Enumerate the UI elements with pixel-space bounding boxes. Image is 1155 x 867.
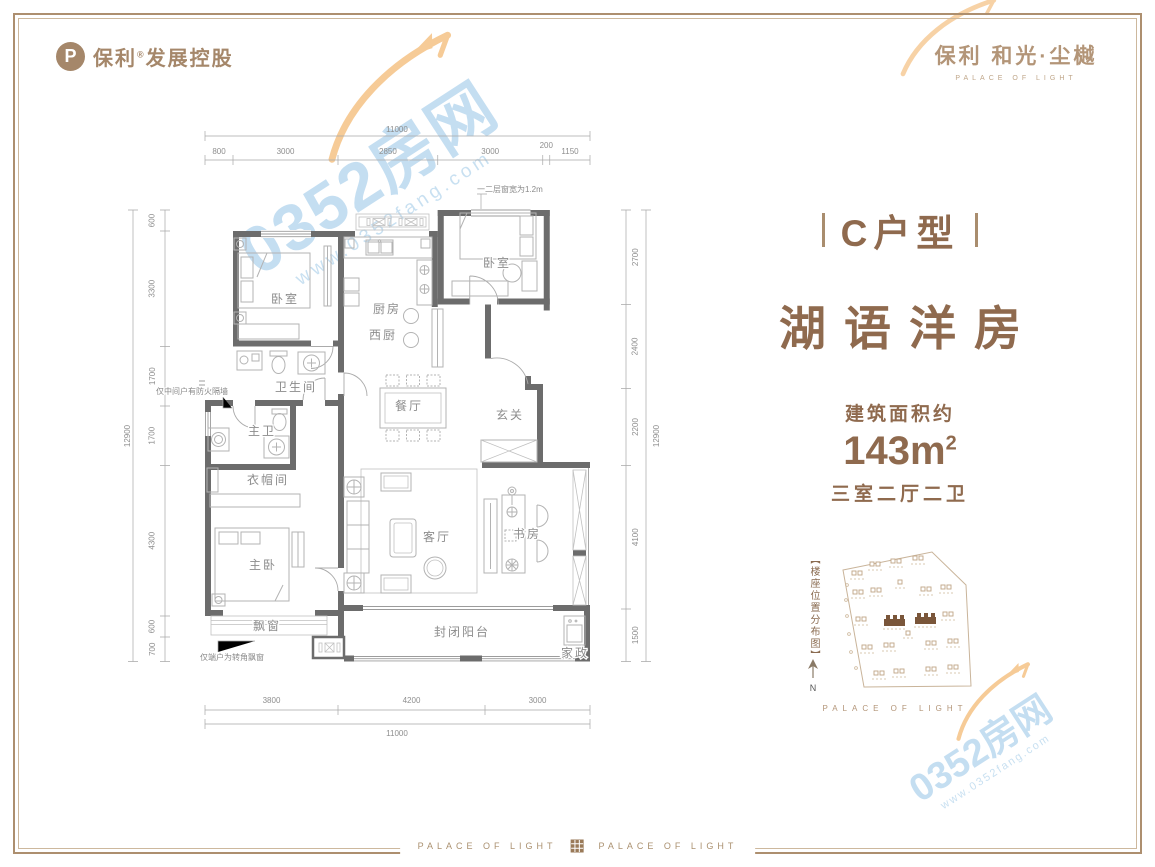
developer-name-rest: 发展控股 xyxy=(146,48,234,70)
footer: PALACE OF LIGHT PALACE OF LIGHT xyxy=(400,836,756,856)
dimension-left: 12900 600 3300 1700 1700 4300 600 700 xyxy=(123,210,170,662)
footer-brand-right: PALACE OF LIGHT xyxy=(599,841,738,851)
layout-description: 三室二厅二卫 xyxy=(755,479,1045,506)
unit-name-text: 湖语洋房 xyxy=(779,302,1039,355)
room-label-laundry: 家政 xyxy=(561,645,589,660)
room-label-bathroom: 卫生间 xyxy=(275,380,317,394)
svg-text:12900: 12900 xyxy=(123,424,132,447)
svg-text:11000: 11000 xyxy=(386,729,408,738)
note-window-width: 一二层窗宽为1.2m xyxy=(477,184,543,194)
svg-text:600: 600 xyxy=(148,213,157,227)
svg-text:1150: 1150 xyxy=(561,147,579,156)
note-corner-bay: 仅端户为转角飘窗 xyxy=(200,652,264,662)
sofa-icon xyxy=(344,469,477,593)
svg-text:2200: 2200 xyxy=(631,418,640,436)
room-label-closet: 衣帽间 xyxy=(247,472,289,487)
svg-text:200: 200 xyxy=(540,141,554,150)
developer-logo: P 保利®发展控股 xyxy=(56,42,234,71)
area-sup: 2 xyxy=(946,433,957,455)
north-arrow-icon xyxy=(806,658,820,680)
svg-text:700: 700 xyxy=(148,642,157,656)
svg-text:1700: 1700 xyxy=(147,426,156,444)
developer-name: 保利®发展控股 xyxy=(93,42,234,71)
north-label: N xyxy=(804,683,822,693)
bed-icon xyxy=(460,213,536,259)
project-logo-cn: 保利 和光·尘樾 xyxy=(911,40,1121,70)
developer-brand: 保利 xyxy=(93,48,137,70)
svg-text:3000: 3000 xyxy=(529,696,547,705)
unit-type: C户型 xyxy=(755,203,1045,257)
room-label-bedroom-right: 卧室 xyxy=(483,255,511,270)
bathroom-fixtures xyxy=(237,351,325,374)
project-logo: 保利 和光·尘樾 PALACE OF LIGHT xyxy=(911,40,1121,82)
dimension-bottom: 3800 4200 3000 11000 xyxy=(205,696,590,738)
room-label-entry: 玄关 xyxy=(496,407,524,422)
area-label: 建筑面积约 xyxy=(755,399,1045,426)
svg-text:800: 800 xyxy=(212,147,226,156)
room-label-living: 客厅 xyxy=(423,529,451,544)
room-label-study: 书房 xyxy=(513,526,541,541)
dimension-top: 11000 800 3000 2850 3000 200 1150 xyxy=(205,125,590,165)
room-label-master-bath: 主卫 xyxy=(248,424,276,438)
svg-text:2850: 2850 xyxy=(379,147,397,156)
svg-text:1700: 1700 xyxy=(148,367,157,385)
site-buildings xyxy=(845,556,960,679)
unit-info-panel: C户型 湖语洋房 建筑面积约 143m2 三室二厅二卫 xyxy=(755,203,1045,506)
room-label-dining: 餐厅 xyxy=(395,398,423,413)
laundry-cabinet-icon xyxy=(564,616,585,645)
footer-brand-left: PALACE OF LIGHT xyxy=(418,841,557,851)
svg-text:4300: 4300 xyxy=(147,531,156,549)
highlighted-building xyxy=(914,613,937,627)
unit-name: 湖语洋房 xyxy=(755,290,1045,359)
north-arrow: N xyxy=(804,658,822,693)
svg-text:11000: 11000 xyxy=(386,125,408,134)
unit-type-label: C户型 xyxy=(841,203,960,257)
right-bar xyxy=(975,213,978,247)
floor-plan-drawing: 11000 800 3000 2850 3000 200 1150 3800 4… xyxy=(115,113,675,763)
svg-text:12900: 12900 xyxy=(652,424,661,447)
svg-text:3300: 3300 xyxy=(147,279,156,297)
registered-mark: ® xyxy=(137,49,146,59)
note-fire-wall: 仅中间户有防火隔墙 xyxy=(156,386,228,396)
svg-text:2400: 2400 xyxy=(631,337,640,355)
site-plan-map xyxy=(833,546,983,696)
area-unit: m xyxy=(910,429,946,473)
svg-text:600: 600 xyxy=(148,619,157,633)
room-label-west-kitchen: 西厨 xyxy=(369,328,397,342)
svg-text:2700: 2700 xyxy=(631,248,640,266)
svg-text:1500: 1500 xyxy=(631,626,640,644)
room-label-bedroom-left: 卧室 xyxy=(271,291,299,306)
svg-text:3800: 3800 xyxy=(263,696,281,705)
kitchen-counter-icon xyxy=(344,237,432,306)
site-plan-legend: 【楼座位置分布图】 xyxy=(806,554,821,662)
room-label-bay-window: 飘窗 xyxy=(253,619,281,633)
seal-icon xyxy=(571,839,585,853)
room-label-kitchen: 厨房 xyxy=(373,301,401,316)
highlighted-building xyxy=(883,615,906,629)
area-number: 143 xyxy=(843,429,910,473)
left-bar xyxy=(822,213,825,247)
room-label-balcony: 封闭阳台 xyxy=(434,624,490,639)
dimension-right: 2700 2400 2200 4100 1500 12900 xyxy=(621,210,661,662)
svg-text:4100: 4100 xyxy=(631,528,640,546)
svg-text:3000: 3000 xyxy=(277,147,295,156)
site-plan-caption: PALACE OF LIGHT xyxy=(800,704,990,713)
svg-text:3000: 3000 xyxy=(481,147,499,156)
room-label-master-bedroom: 主卧 xyxy=(249,558,277,572)
svg-text:4200: 4200 xyxy=(403,696,421,705)
developer-mark-icon: P xyxy=(56,42,85,71)
project-logo-en: PALACE OF LIGHT xyxy=(911,75,1121,82)
watermark-url: www.0352fang.com xyxy=(939,732,1053,812)
area-value: 143m2 xyxy=(755,429,1045,474)
